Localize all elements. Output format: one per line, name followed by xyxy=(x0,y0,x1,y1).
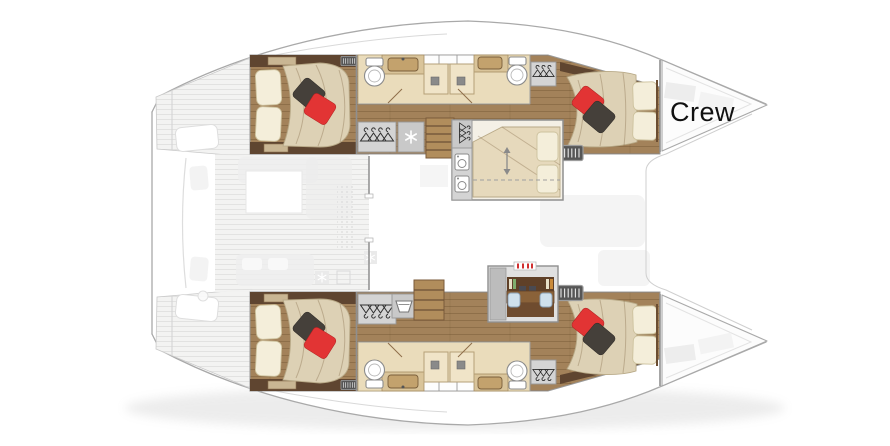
freezer xyxy=(398,122,424,152)
laundry-locker xyxy=(392,294,416,318)
catamaran-floor-plan: Crew xyxy=(0,0,890,446)
shelf-unit xyxy=(414,280,444,320)
crew-label: Crew xyxy=(670,97,735,127)
desk-office xyxy=(488,262,558,322)
forepeak-cabin xyxy=(452,120,563,200)
cockpit-table xyxy=(246,171,302,213)
stairs xyxy=(426,118,454,158)
cockpit-fridge xyxy=(364,251,377,264)
desk-chair xyxy=(508,293,520,307)
cockpit-grating xyxy=(337,186,353,248)
first-aid-kit xyxy=(514,262,536,270)
cockpit-fridge xyxy=(315,271,329,284)
desk-chair xyxy=(540,293,552,307)
